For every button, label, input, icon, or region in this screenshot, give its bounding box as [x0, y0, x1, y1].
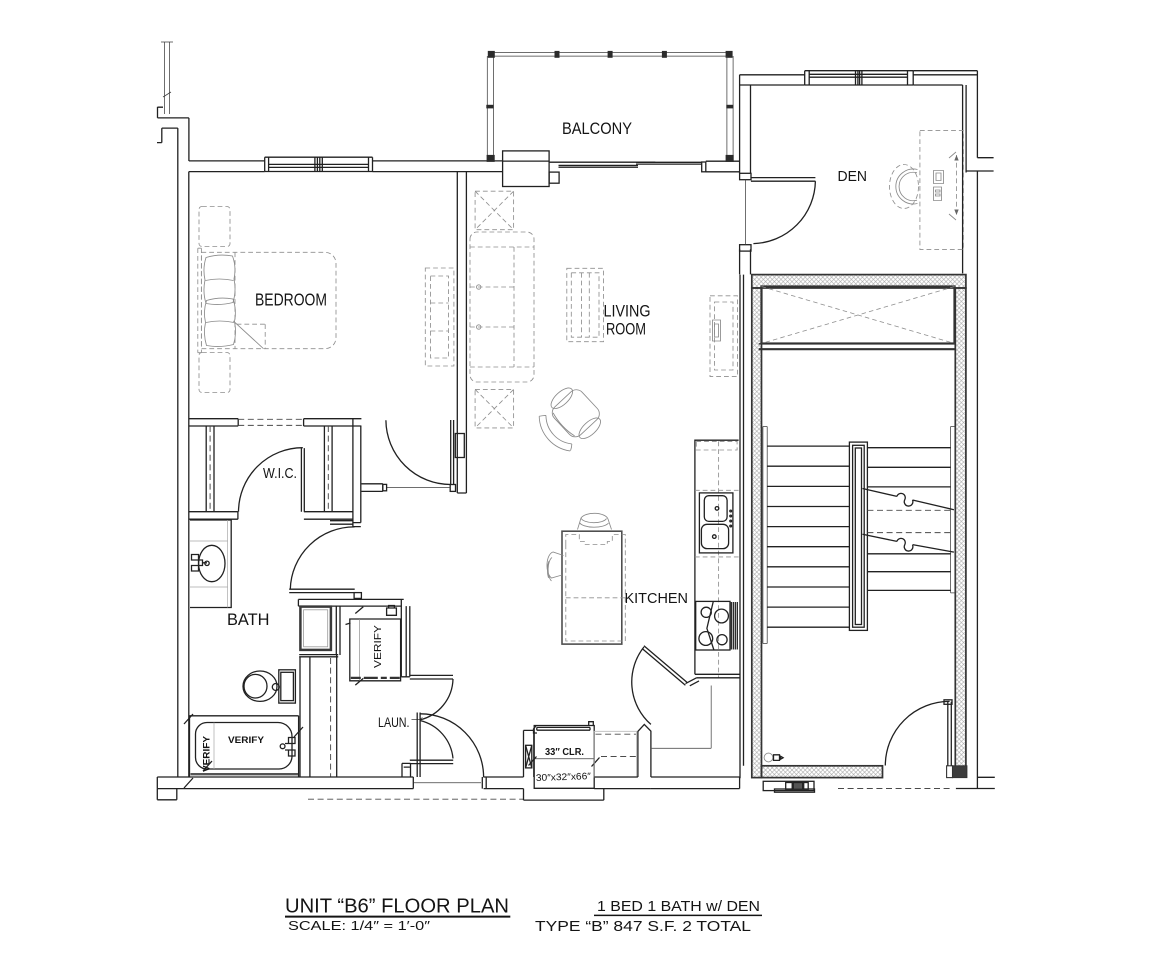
svg-text:ROOM: ROOM	[606, 320, 646, 339]
svg-text:LIVING: LIVING	[604, 302, 651, 321]
svg-text:KITCHEN: KITCHEN	[625, 591, 689, 607]
svg-text:30″x32″x66″: 30″x32″x66″	[536, 771, 592, 784]
svg-text:BALCONY: BALCONY	[562, 119, 632, 138]
svg-text:TYPE “B” 847 S.F. 2 TOTAL: TYPE “B” 847 S.F. 2 TOTAL	[535, 919, 751, 935]
svg-text:VERIFY: VERIFY	[372, 625, 384, 668]
svg-text:BATH: BATH	[227, 611, 270, 629]
svg-text:VERIFY: VERIFY	[228, 735, 265, 746]
svg-text:BEDROOM: BEDROOM	[255, 290, 327, 310]
svg-text:1 BED 1 BATH w/ DEN: 1 BED 1 BATH w/ DEN	[597, 899, 760, 915]
svg-text:33″ CLR.: 33″ CLR.	[545, 747, 584, 758]
svg-text:LAUN.: LAUN.	[378, 714, 410, 730]
svg-text:W.I.C.: W.I.C.	[263, 466, 297, 482]
svg-text:UNIT “B6” FLOOR PLAN: UNIT “B6” FLOOR PLAN	[285, 896, 509, 918]
svg-text:DEN: DEN	[838, 169, 868, 185]
svg-text:SCALE: 1/4″ = 1′-0″: SCALE: 1/4″ = 1′-0″	[288, 919, 431, 933]
